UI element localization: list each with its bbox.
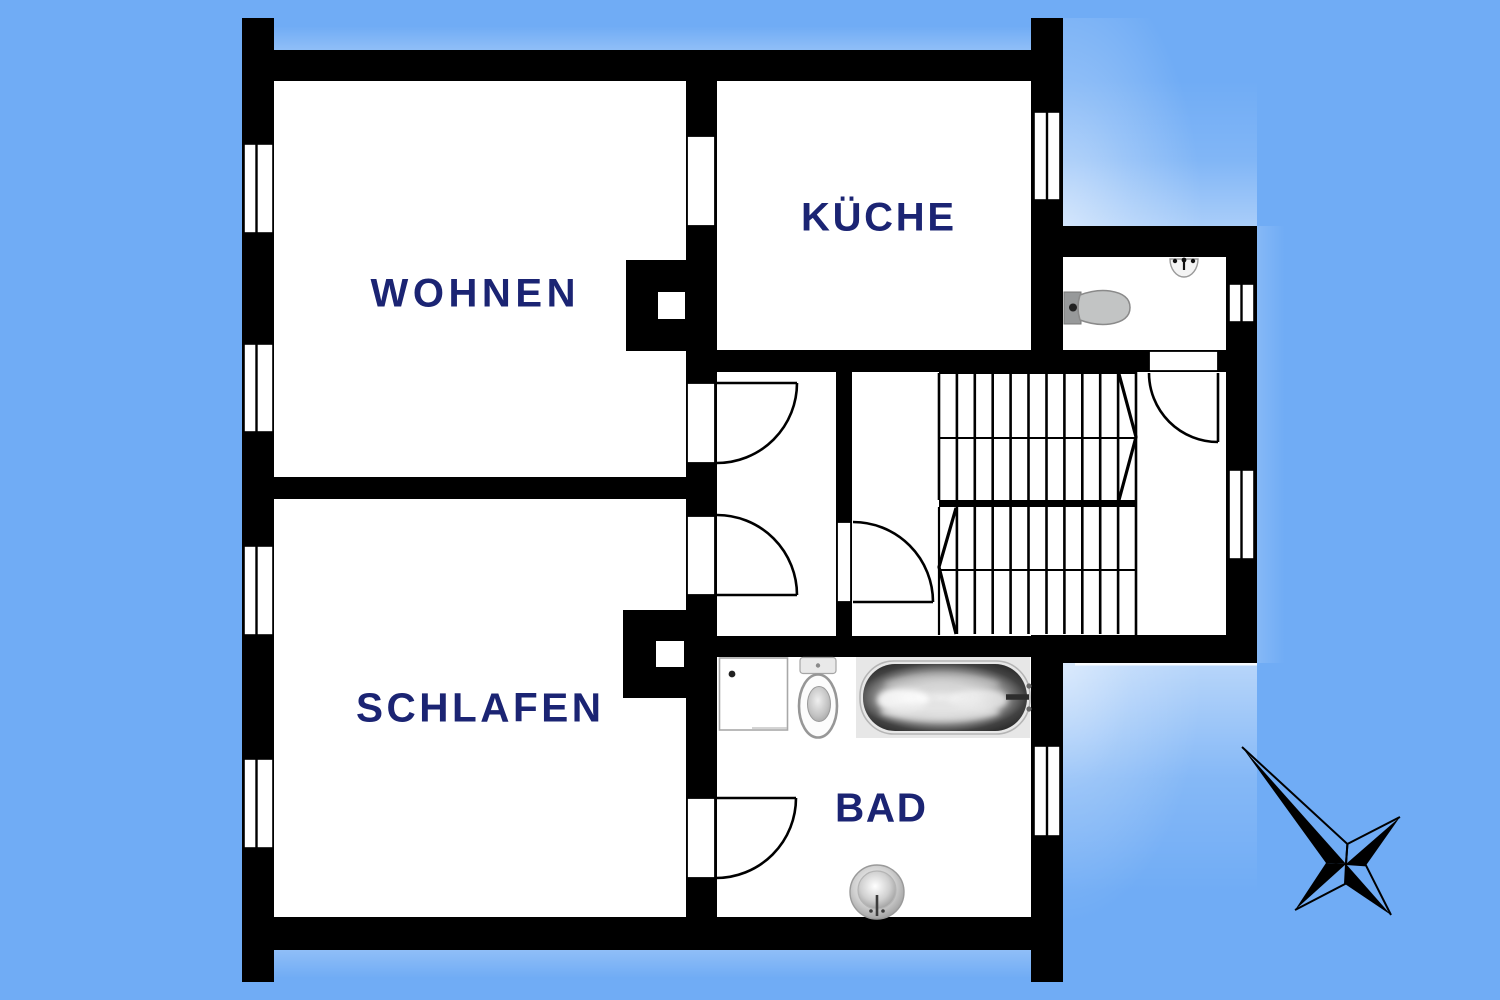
svg-text:BAD: BAD [835, 785, 926, 831]
svg-text:KÜCHE: KÜCHE [801, 195, 954, 240]
